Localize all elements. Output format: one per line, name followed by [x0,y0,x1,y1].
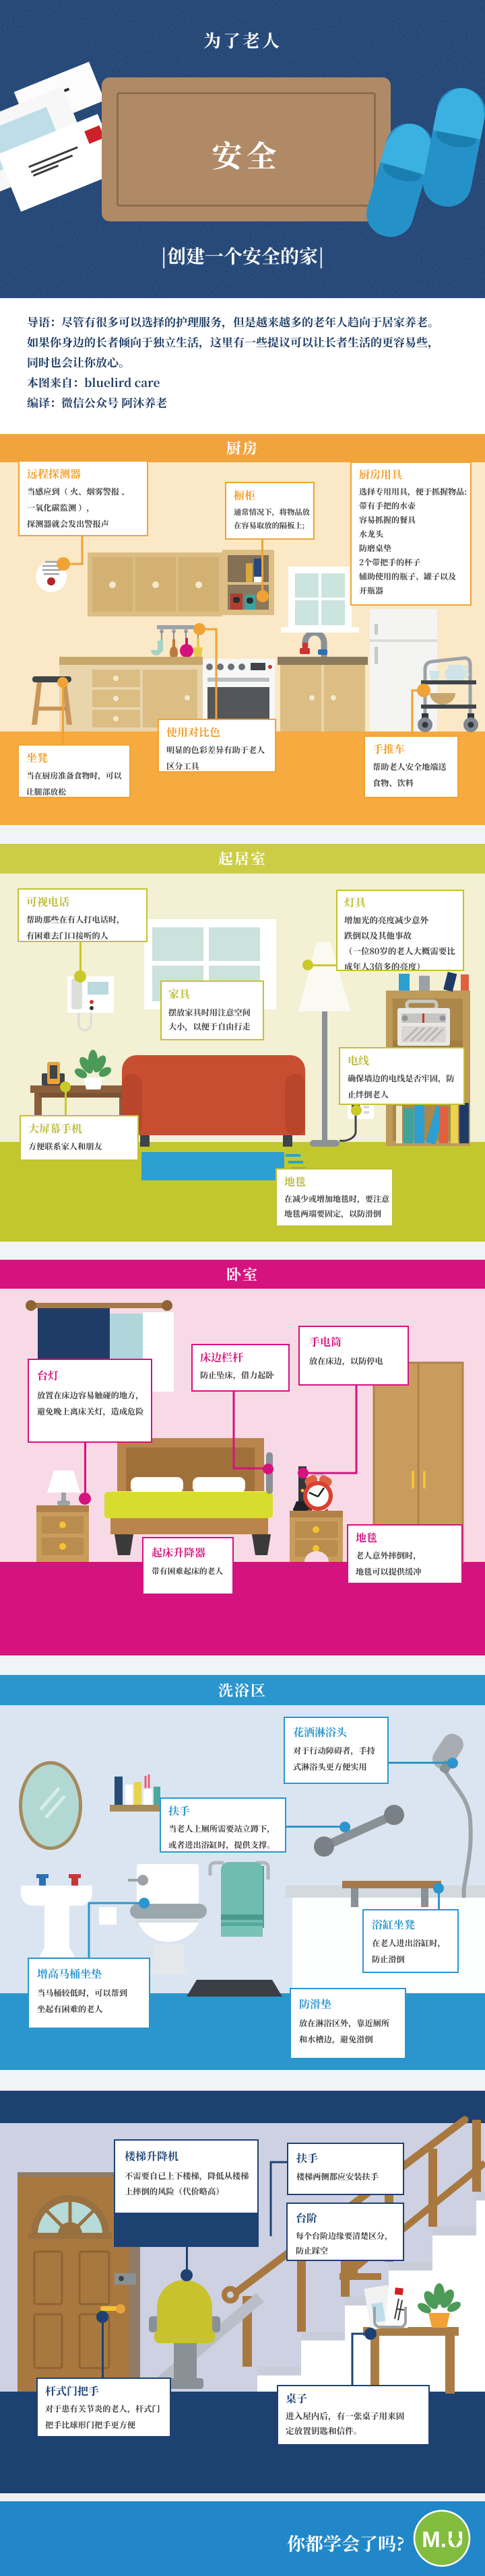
svg-text:M: M [422,2527,441,2552]
